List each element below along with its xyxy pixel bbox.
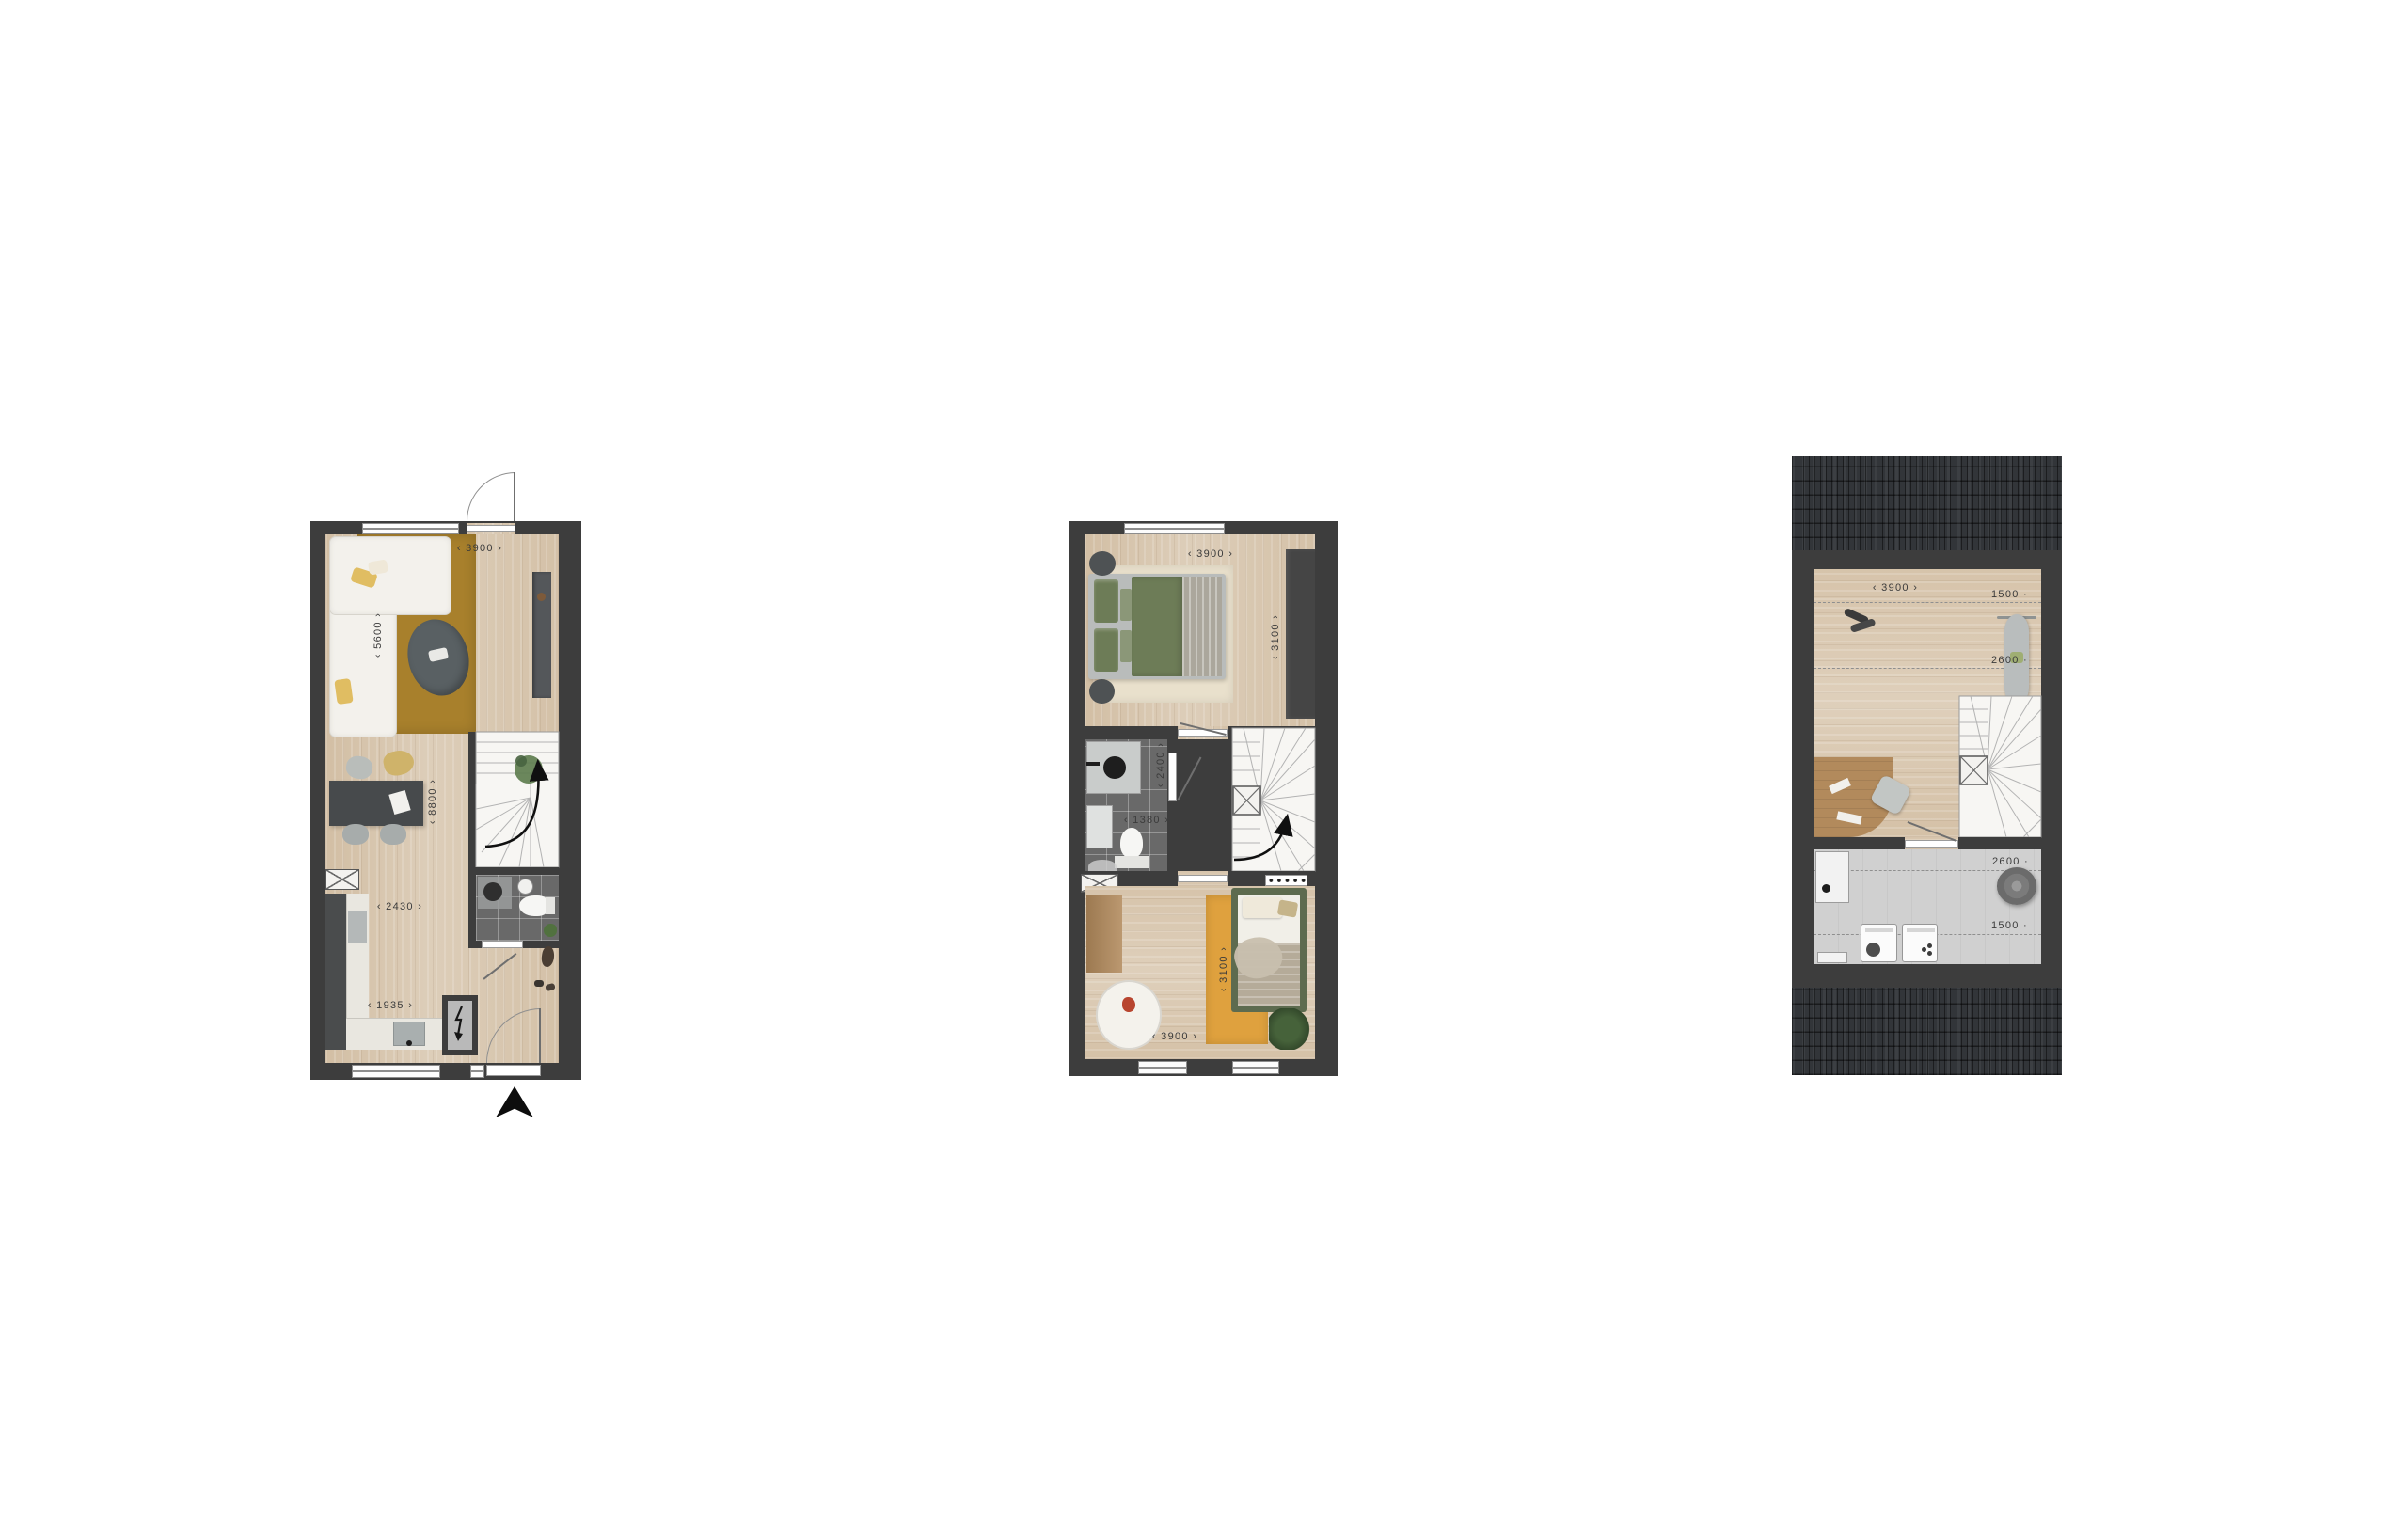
kitchen-tall-cabinets xyxy=(325,894,346,1050)
boiler-unit xyxy=(1997,867,2036,905)
dim-label: ‹ 3100 › xyxy=(1269,609,1282,665)
sofa-pillow-yellow-2 xyxy=(334,678,353,705)
bedside-stool xyxy=(1089,679,1115,704)
back-door-leaf xyxy=(514,472,515,521)
roof-front xyxy=(1792,456,2062,552)
bedroom2-window xyxy=(1138,1061,1187,1074)
bathroom-door-threshold xyxy=(482,941,523,948)
dim-label: 1500 · xyxy=(1972,919,2028,932)
entrance-door-leaf xyxy=(539,1008,541,1063)
dim-label: ‹ 8800 › xyxy=(426,773,439,830)
bedroom2-door-threshold xyxy=(1178,875,1228,882)
toilet-cistern xyxy=(1115,856,1149,868)
dim-label: 2600 · xyxy=(1972,855,2029,868)
tv-cabinet xyxy=(532,572,551,698)
staircase-attic xyxy=(1959,696,2041,837)
shoes xyxy=(534,980,544,987)
lightning-bolt-icon xyxy=(451,1005,468,1044)
bathroom-door-threshold xyxy=(1168,753,1177,801)
bed-single xyxy=(1231,888,1307,1012)
roof-rear xyxy=(1792,988,2062,1075)
dim-label: ‹ 3900 › xyxy=(1858,581,1933,594)
plant-in-bathroom xyxy=(544,924,557,937)
dim-label: ‹ 3900 › xyxy=(1137,1030,1212,1043)
shaft-box xyxy=(325,869,359,890)
bedroom2-window xyxy=(1232,1061,1279,1074)
toilet-cistern xyxy=(546,897,555,914)
shower-head xyxy=(483,882,502,901)
dining-table xyxy=(329,781,423,826)
dim-label: 1500 · xyxy=(1972,588,2028,601)
floorplan-first-floor: ‹ 3900 › ‹ 3100 › ‹ 2400 › ‹ 1380 › ‹ 31… xyxy=(1069,521,1338,1076)
bathroom xyxy=(476,875,559,941)
washing-machine xyxy=(1861,924,1897,962)
stairwell-wall xyxy=(468,732,476,946)
wardrobe xyxy=(1286,549,1315,719)
staircase-first xyxy=(1232,728,1315,871)
shower-head xyxy=(1103,756,1126,779)
dim-label: ‹ 3900 › xyxy=(442,542,517,555)
dim-label: ‹ 2400 › xyxy=(1154,737,1167,793)
dim-label: ‹ 5600 › xyxy=(372,607,385,663)
bedroom1-window xyxy=(1124,523,1225,534)
radiator xyxy=(1265,875,1307,886)
dim-label: ‹ 3900 › xyxy=(1173,547,1248,561)
floorplan-sheet: ‹ 3900 › ‹ 5600 › ‹ 8800 › ‹ 2430 › ‹ 19… xyxy=(0,0,2408,1537)
dim-label: 2600 · xyxy=(1972,654,2028,667)
bathroom-door-leaf xyxy=(1177,757,1201,801)
dining-chair xyxy=(342,824,369,845)
washbasin xyxy=(517,879,533,895)
dim-label: ‹ 1380 › xyxy=(1109,814,1184,827)
bathroom-wall-top xyxy=(468,867,559,875)
dim-label: ‹ 1935 › xyxy=(353,999,428,1012)
laundry-door-threshold xyxy=(1905,840,1958,848)
back-door-threshold xyxy=(467,525,515,532)
entrance-sidelight xyxy=(470,1065,484,1078)
floorplan-second-floor: ‹ 3900 › 1500 · 2600 · 2600 · 1500 · xyxy=(1792,456,2062,1075)
bedside-stool xyxy=(1089,551,1116,576)
storage-box xyxy=(1817,952,1847,963)
washbasin-cabinet xyxy=(1086,805,1113,848)
plant-pot-on-cabinet xyxy=(537,593,546,601)
staircase-ground xyxy=(476,732,559,867)
toy xyxy=(1122,997,1135,1012)
dim-label: ‹ 2430 › xyxy=(362,900,437,913)
ventilation-unit xyxy=(1815,851,1849,903)
toilet xyxy=(1120,828,1143,858)
dim-label: ‹ 3100 › xyxy=(1217,941,1230,997)
floorplan-ground-floor: ‹ 3900 › ‹ 5600 › ‹ 8800 › ‹ 2430 › ‹ 19… xyxy=(310,521,581,1080)
entrance-door-threshold xyxy=(486,1065,541,1076)
shower-fixture xyxy=(1086,762,1100,766)
headroom-line xyxy=(1814,602,2041,603)
back-door-swing xyxy=(467,472,515,521)
plant xyxy=(1269,1008,1310,1050)
dining-chair xyxy=(380,824,406,845)
kitchen-window xyxy=(352,1065,440,1078)
sofa-seat xyxy=(329,536,451,615)
kitchen-faucet xyxy=(406,1040,412,1046)
dresser xyxy=(1086,895,1122,973)
cooktop xyxy=(348,911,367,943)
bed-double xyxy=(1088,574,1226,679)
north-arrow-icon xyxy=(496,1086,533,1117)
dryer xyxy=(1902,924,1938,962)
living-room-window xyxy=(362,523,459,534)
meter-cupboard xyxy=(442,995,478,1055)
